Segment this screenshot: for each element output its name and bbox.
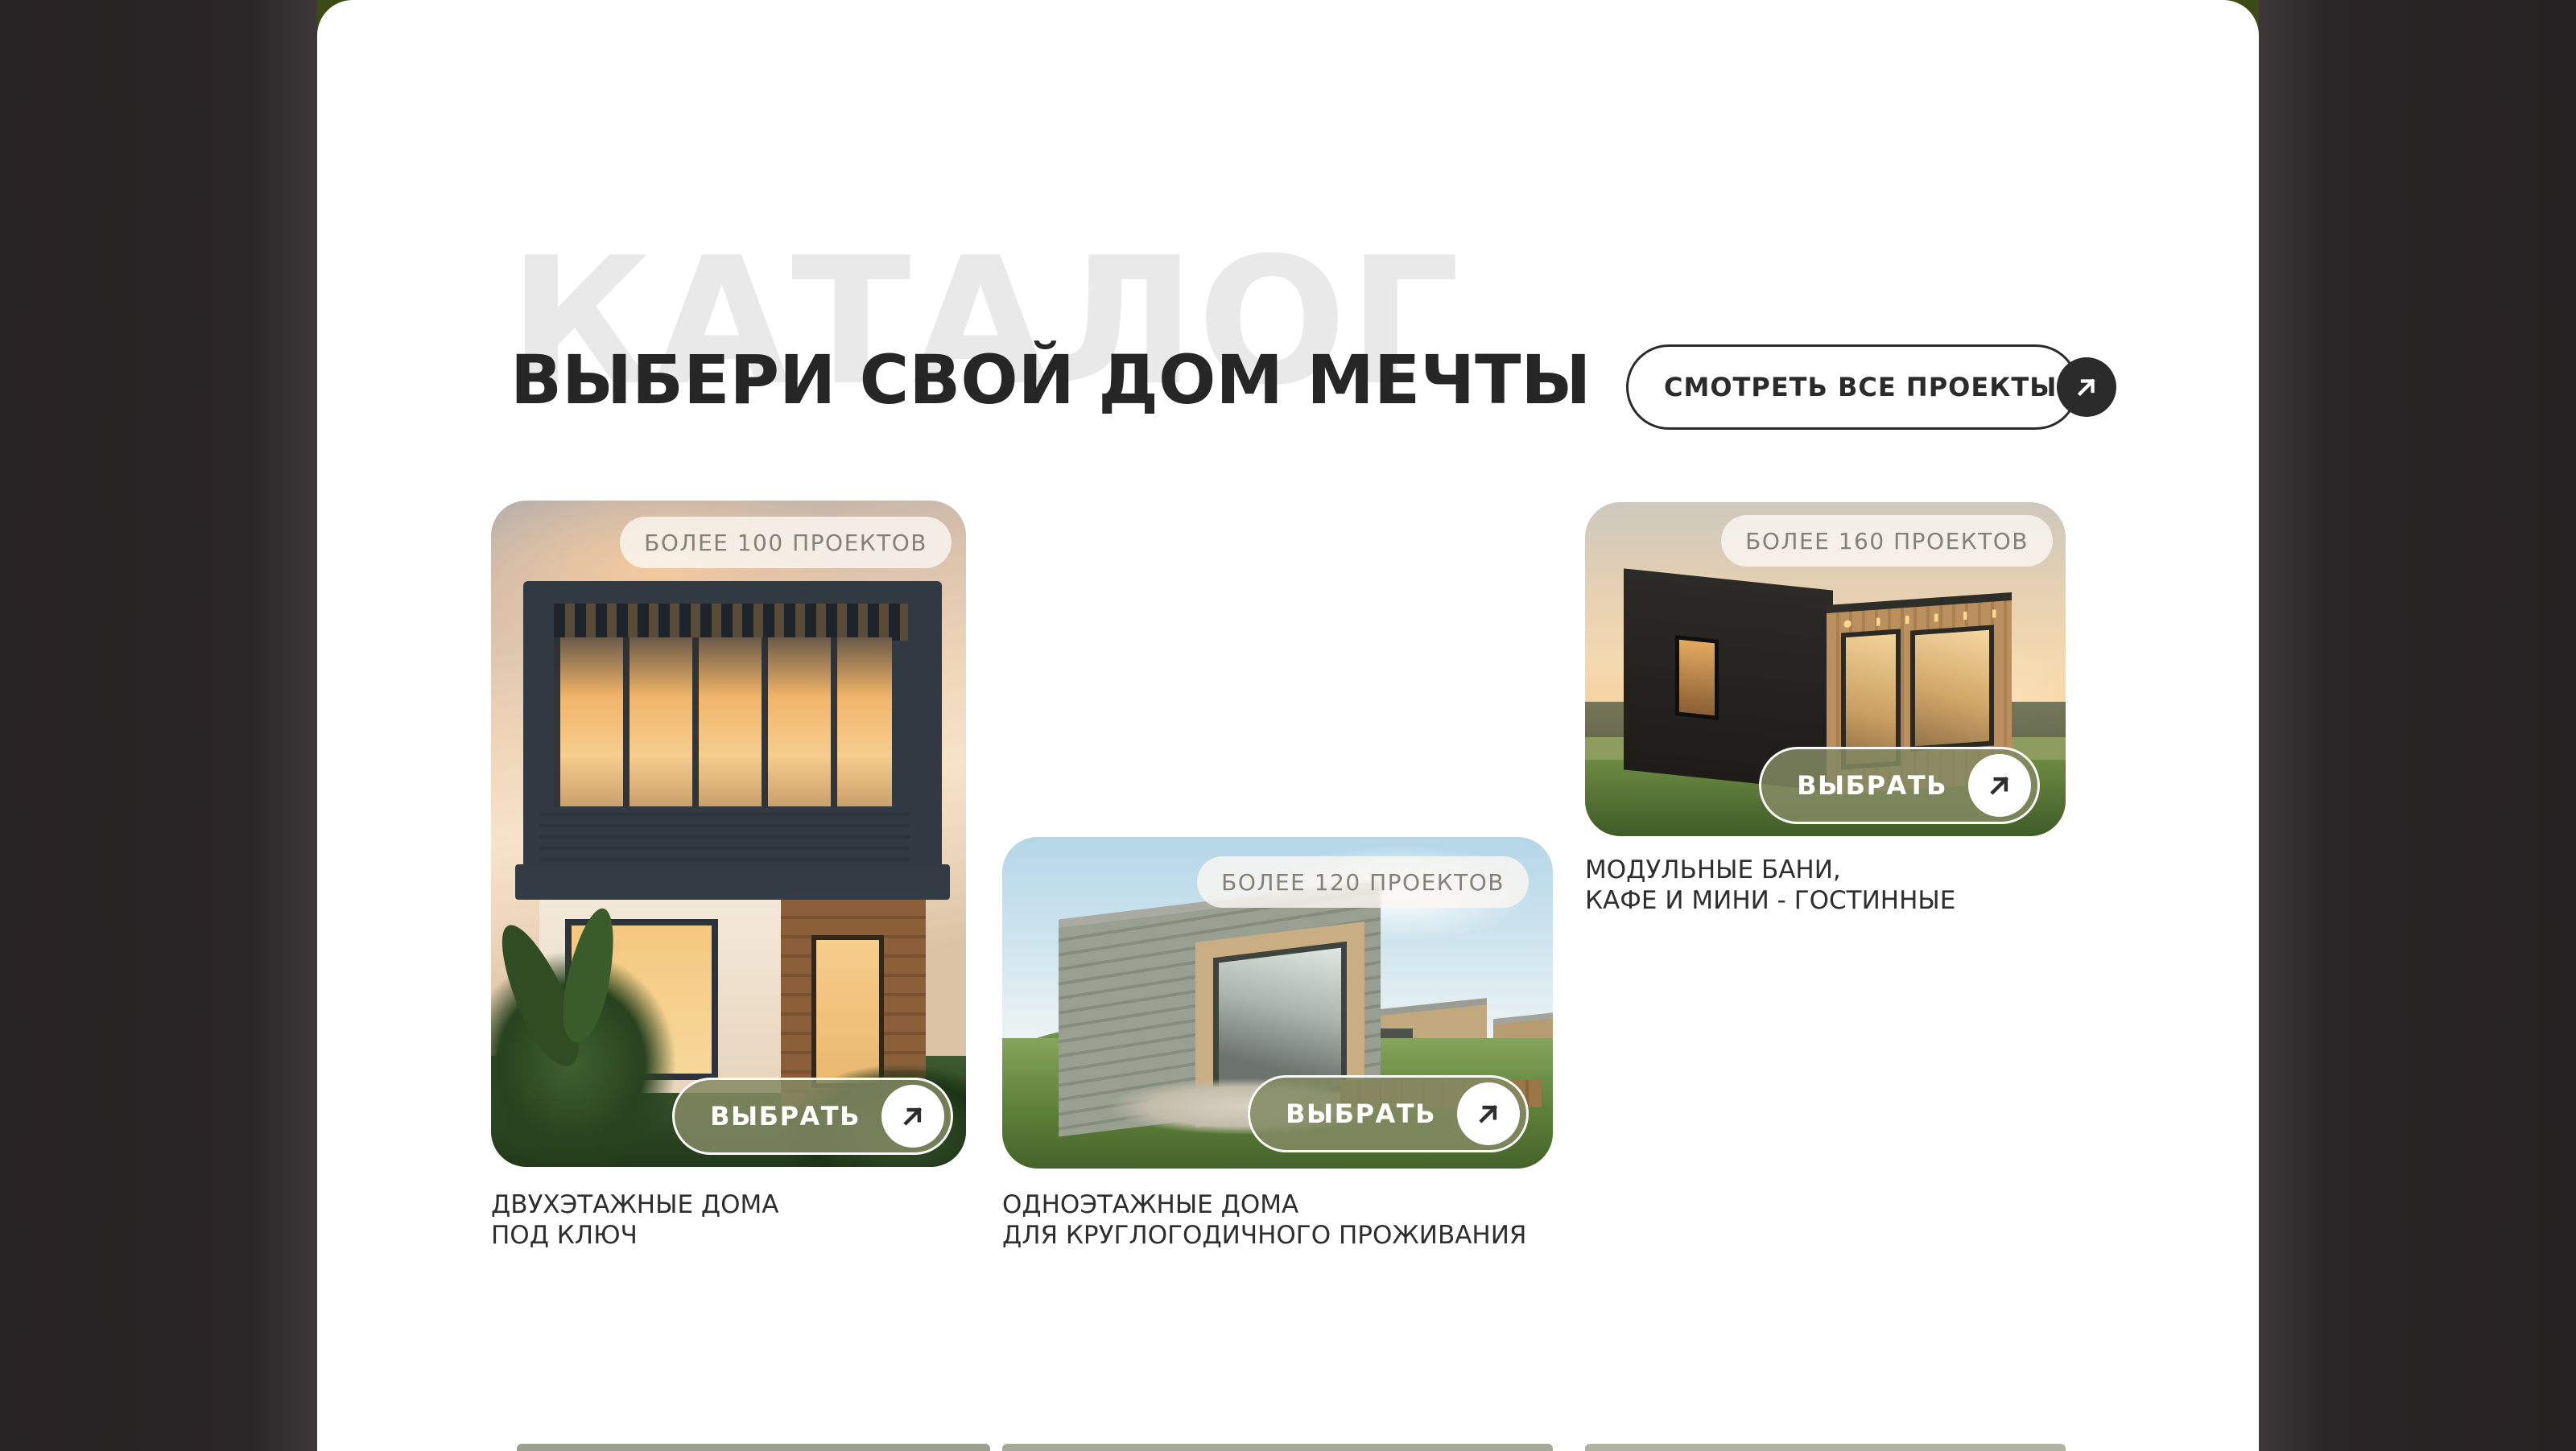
right-dark-band	[2259, 0, 2576, 1451]
arrow-up-right-icon	[896, 1099, 930, 1133]
photo-window-mullions	[554, 637, 892, 806]
caption-line: МОДУЛЬНЫЕ БАНИ,	[1585, 855, 1955, 885]
card-caption-one-storey: ОДНОЭТАЖНЫЕ ДОМА ДЛЯ КРУГЛОГОДИЧНОГО ПРО…	[1002, 1189, 1526, 1251]
projects-count-badge: БОЛЕЕ 160 ПРОЕКТОВ	[1721, 515, 2053, 567]
view-all-projects-label: СМОТРЕТЬ ВСЕ ПРОЕКТЫ	[1664, 372, 2057, 402]
next-section-peek	[1002, 1444, 1553, 1451]
projects-count-label: БОЛЕЕ 100 ПРОЕКТОВ	[644, 530, 927, 556]
arrow-circle	[1968, 754, 2031, 817]
photo-module-window	[1675, 635, 1719, 720]
next-section-peek	[517, 1444, 990, 1451]
caption-line: ОДНОЭТАЖНЫЕ ДОМА	[1002, 1189, 1526, 1220]
card-one-storey-houses[interactable]: БОЛЕЕ 120 ПРОЕКТОВ ВЫБРАТЬ	[1002, 837, 1553, 1169]
select-button[interactable]: ВЫБРАТЬ	[1248, 1075, 1529, 1152]
photo-ceiling-slats	[554, 604, 908, 641]
card-two-storey-houses[interactable]: БОЛЕЕ 100 ПРОЕКТОВ ВЫБРАТЬ	[491, 501, 966, 1167]
caption-line: ПОД КЛЮЧ	[491, 1220, 778, 1251]
arrow-up-right-icon	[1472, 1097, 1505, 1131]
photo-glazing	[1910, 625, 1994, 751]
next-section-peek	[1585, 1444, 2066, 1451]
arrow-circle	[1457, 1082, 1520, 1145]
projects-count-badge: БОЛЕЕ 100 ПРОЕКТОВ	[620, 517, 952, 568]
caption-line: ДЛЯ КРУГЛОГОДИЧНОГО ПРОЖИВАНИЯ	[1002, 1220, 1526, 1251]
photo-balcony-slab	[515, 864, 950, 900]
view-all-projects-button[interactable]: СМОТРЕТЬ ВСЕ ПРОЕКТЫ	[1626, 344, 2079, 430]
caption-line: ДВУХЭТАЖНЫЕ ДОМА	[491, 1189, 778, 1220]
projects-count-label: БОЛЕЕ 160 ПРОЕКТОВ	[1745, 528, 2029, 554]
card-caption-two-storey: ДВУХЭТАЖНЫЕ ДОМА ПОД КЛЮЧ	[491, 1189, 778, 1251]
select-button[interactable]: ВЫБРАТЬ	[672, 1078, 953, 1155]
photo-balcony-railing	[539, 813, 910, 869]
card-caption-saunas: МОДУЛЬНЫЕ БАНИ, КАФЕ И МИНИ - ГОСТИННЫЕ	[1585, 855, 1955, 916]
select-button-label: ВЫБРАТЬ	[1797, 770, 1947, 801]
left-dark-band	[0, 0, 317, 1451]
select-button-label: ВЫБРАТЬ	[1286, 1099, 1436, 1129]
arrow-up-right-icon	[1983, 769, 2017, 802]
select-button[interactable]: ВЫБРАТЬ	[1759, 747, 2040, 824]
card-photo-two-storey-house	[491, 501, 966, 1167]
page: КАТАЛОГ ВЫБЕРИ СВОЙ ДОМ МЕЧТЫ СМОТРЕТЬ В…	[0, 0, 2576, 1451]
caption-line: КАФЕ И МИНИ - ГОСТИННЫЕ	[1585, 885, 1955, 916]
projects-count-label: БОЛЕЕ 120 ПРОЕКТОВ	[1221, 869, 1505, 896]
card-modular-saunas[interactable]: БОЛЕЕ 160 ПРОЕКТОВ ВЫБРАТЬ	[1585, 502, 2066, 836]
arrow-circle	[881, 1085, 944, 1148]
section-title: ВЫБЕРИ СВОЙ ДОМ МЕЧТЫ	[510, 346, 1591, 414]
arrow-circle	[2057, 357, 2116, 417]
arrow-up-right-icon	[2070, 371, 2103, 403]
select-button-label: ВЫБРАТЬ	[710, 1101, 861, 1132]
catalog-section: КАТАЛОГ ВЫБЕРИ СВОЙ ДОМ МЕЧТЫ СМОТРЕТЬ В…	[317, 0, 2259, 1451]
projects-count-badge: БОЛЕЕ 120 ПРОЕКТОВ	[1197, 856, 1529, 908]
